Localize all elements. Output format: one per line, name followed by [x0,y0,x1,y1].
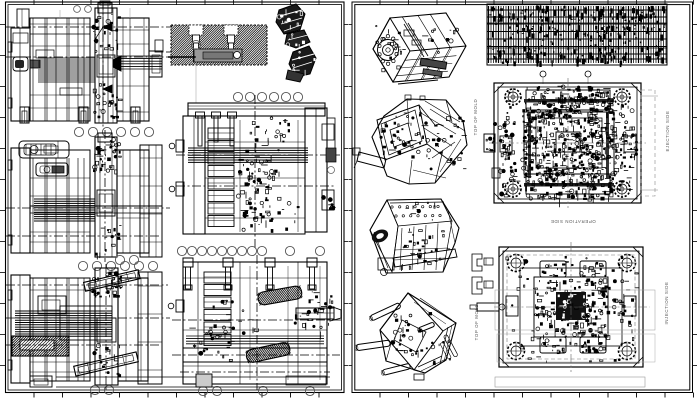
svg-text:INJECTION SIDE: INJECTION SIDE [664,281,669,324]
svg-text:OPERATION SIDE: OPERATION SIDE [550,219,595,224]
svg-text:TOP OF MOLD: TOP OF MOLD [473,99,478,136]
svg-text:TOP OF MOLD: TOP OF MOLD [474,304,479,341]
svg-text:EJECTION SIDE: EJECTION SIDE [665,111,670,152]
